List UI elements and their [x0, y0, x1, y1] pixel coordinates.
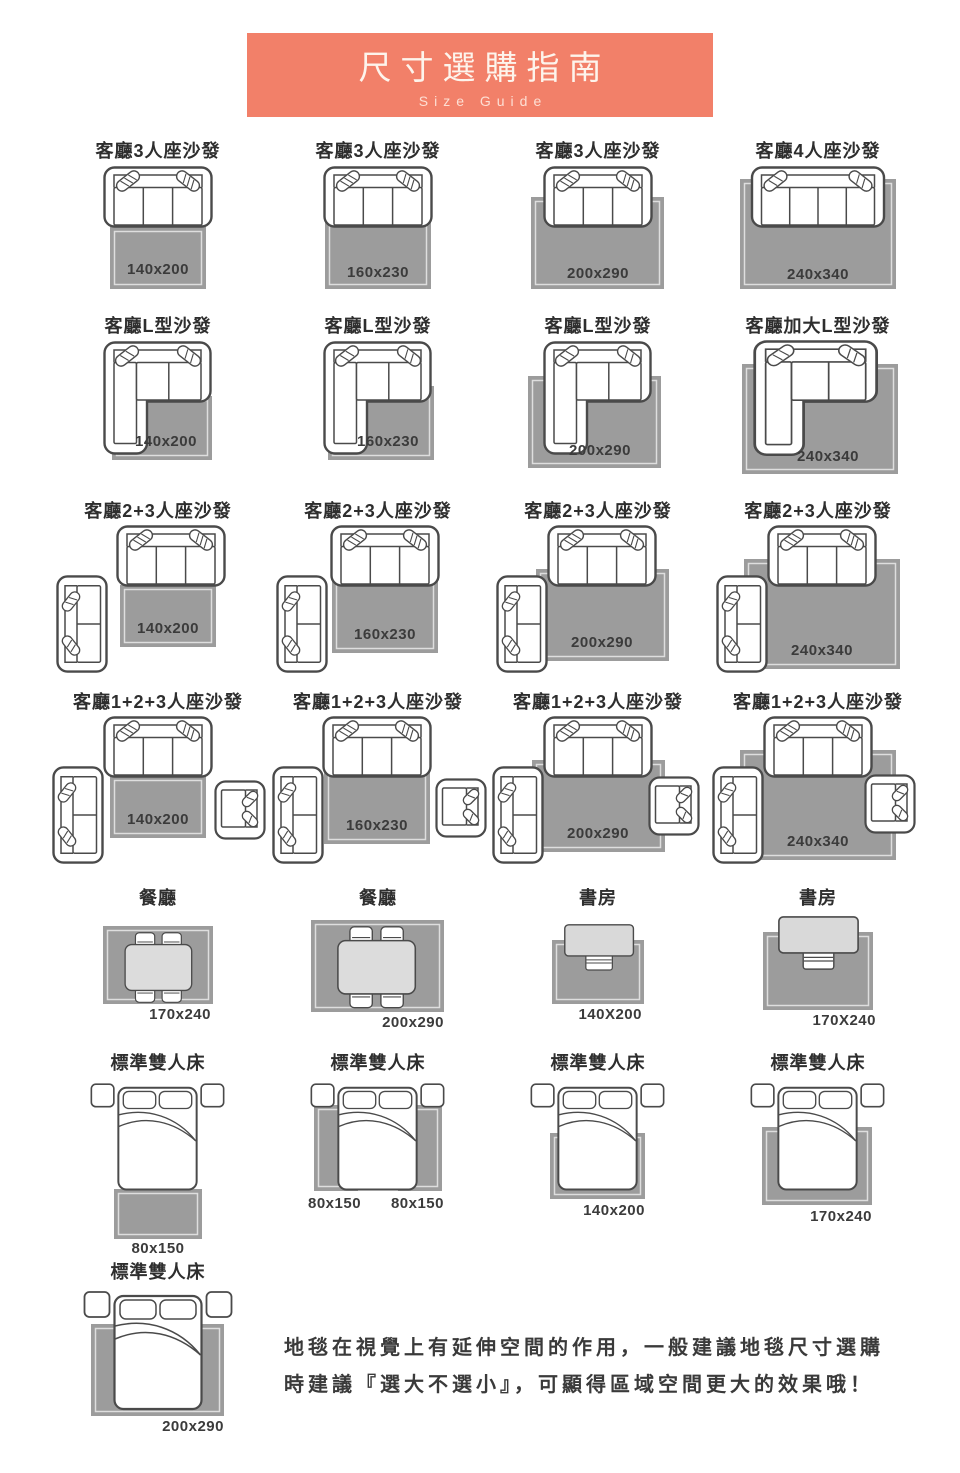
cell-title: 書房: [579, 884, 617, 910]
sofa-3seat-top-view-icon: [118, 527, 225, 586]
cell-figure: 160x230: [268, 714, 488, 874]
rug-size-label: 200x290: [162, 1418, 224, 1435]
sofa-3seat-top-view-icon: [549, 527, 656, 586]
sofa-1plus2plus3-diagram: [708, 714, 928, 874]
cell-sofa123-140x200: 客廳1+2+3人座沙發 140x200: [48, 688, 268, 874]
header-banner: 尺寸選購指南 Size Guide: [247, 33, 713, 117]
cell-title: 客廳1+2+3人座沙發: [73, 688, 243, 714]
rug-size-label: 240x340: [791, 642, 853, 659]
rug-size-label: 80x150: [308, 1195, 361, 1212]
cell-figure: 170x240: [708, 1075, 928, 1250]
sofa-3seat-top-view-icon: [765, 718, 872, 777]
sofa-3seat-top-view-icon: [105, 718, 212, 777]
sofa-3seat-top-view-icon: [545, 718, 652, 777]
cell-title: 餐廳: [139, 884, 177, 910]
cell-title: 客廳加大L型沙發: [746, 312, 891, 338]
loveseat-2seat-top-view-icon: [718, 576, 767, 671]
cell-bed-side-runners-80x150: 標準雙人床 80x150 80x150: [268, 1049, 488, 1250]
row-dining-study: 餐廳 170x240 餐廳 200x290 書房 140X200: [0, 884, 960, 1035]
rug-size-label: 200x290: [569, 442, 631, 459]
cell-title: 客廳3人座沙發: [535, 137, 660, 163]
cell-figure: 160x230: [268, 163, 488, 298]
sofa-2plus3-diagram: [268, 523, 488, 678]
gray-rug: [110, 776, 206, 838]
cell-title: 客廳1+2+3人座沙發: [733, 688, 903, 714]
cell-title: 標準雙人床: [111, 1049, 206, 1075]
bed-runners-diagram: [268, 1075, 488, 1250]
cell-study-170x240: 書房 170X240: [708, 884, 928, 1035]
cell-lsofa-200x290: 客廳L型沙發 200x290: [488, 312, 708, 483]
sofa-3seat-top-view-icon: [105, 168, 212, 227]
cell-figure: 200x290: [488, 338, 708, 483]
l-sofa-diagram: [48, 338, 268, 483]
row-sofa-1plus2plus3: 客廳1+2+3人座沙發 140x200 客廳1+2+3人座沙發 160x230 …: [0, 688, 960, 874]
cell-lsofa-140x200: 客廳L型沙發 140x200: [48, 312, 268, 483]
cell-figure: 160x230: [268, 338, 488, 483]
cell-figure: 140x200: [48, 163, 268, 298]
cell-title: 書房: [799, 884, 837, 910]
cell-title: 標準雙人床: [551, 1049, 646, 1075]
sofa-1plus2plus3-diagram: [48, 714, 268, 874]
rug-size-label: 200x290: [567, 825, 629, 842]
sofa-1plus2plus3-diagram: [488, 714, 708, 874]
cell-figure: 80x150 80x150: [268, 1075, 488, 1250]
rug-size-label: 80x150: [131, 1240, 184, 1257]
l-sofa-diagram: [488, 338, 708, 483]
cell-dining-170x240: 餐廳 170x240: [48, 884, 268, 1035]
rug-size-label: 200x290: [382, 1014, 444, 1031]
cell-figure: 170X240: [708, 910, 928, 1035]
cell-figure: 140X200: [488, 910, 708, 1035]
loveseat-2seat-top-view-icon: [274, 767, 323, 862]
cell-figure: 200x290: [488, 163, 708, 298]
cell-bed-foot-rug-80x150: 標準雙人床 80x150: [48, 1049, 268, 1250]
rug-size-label: 170x240: [149, 1006, 211, 1023]
cell-title: 標準雙人床: [111, 1258, 206, 1284]
gray-rug: [110, 227, 206, 289]
cell-figure: 240x340: [708, 523, 928, 678]
cell-figure: 160x230: [268, 523, 488, 678]
cell-figure: 140x200: [48, 523, 268, 678]
rug-size-label: 240x340: [797, 448, 859, 465]
rug-size-label: 140x200: [137, 620, 199, 637]
cell-sofa3-140x200: 客廳3人座沙發 140x200: [48, 137, 268, 298]
cell-figure: 240x340: [708, 338, 928, 483]
cell-bed-140x200: 標準雙人床 140x200: [488, 1049, 708, 1250]
rug-size-label: 140X200: [578, 1006, 642, 1023]
loveseat-2seat-top-view-icon: [494, 767, 543, 862]
cell-lsofa-xl-240x340: 客廳加大L型沙發 240x340: [708, 312, 928, 483]
cell-title: 客廳3人座沙發: [95, 137, 220, 163]
rug-size-label: 80x150: [391, 1195, 444, 1212]
l-sofa-diagram: [268, 338, 488, 483]
cell-title: 客廳L型沙發: [325, 312, 432, 338]
sofa-3seat-top-view-icon: [325, 168, 432, 227]
cell-figure: 200x290: [48, 1284, 268, 1434]
cell-figure: 140x200: [48, 338, 268, 483]
sofa-3seat-top-view-icon: [324, 718, 431, 777]
armchair-top-view-icon: [216, 782, 265, 839]
cell-figure: 200x290: [488, 714, 708, 874]
rug-size-label: 140x200: [583, 1202, 645, 1219]
cell-title: 標準雙人床: [771, 1049, 866, 1075]
rug-size-label: 170x240: [810, 1208, 872, 1225]
sofa-3seat-top-view-icon: [545, 168, 652, 227]
cell-title: 客廳2+3人座沙發: [524, 497, 672, 523]
row-sofa-straight: 客廳3人座沙發 140x200 客廳3人座沙發 160x230 客廳3人座沙發 …: [0, 137, 960, 298]
rug-size-label: 160x230: [346, 817, 408, 834]
cell-title: 客廳4人座沙發: [755, 137, 880, 163]
cell-title: 客廳2+3人座沙發: [84, 497, 232, 523]
rug-size-label: 170X240: [812, 1012, 876, 1029]
cell-title: 客廳3人座沙發: [315, 137, 440, 163]
sofa-3seat-top-view-icon: [769, 527, 876, 586]
loveseat-2seat-top-view-icon: [714, 767, 763, 862]
cell-dining-200x290: 餐廳 200x290: [268, 884, 488, 1035]
rug-size-label: 240x340: [787, 833, 849, 850]
sofa-3seat-top-view-icon: [332, 527, 439, 586]
cell-sofa3-200x290: 客廳3人座沙發 200x290: [488, 137, 708, 298]
sofa-4seat-top-view-icon: [752, 168, 884, 227]
cell-sofa23-160x230: 客廳2+3人座沙發 160x230: [268, 497, 488, 678]
cell-study-140x200: 書房 140X200: [488, 884, 708, 1035]
gray-rug: [120, 585, 216, 647]
sofa-2plus3-diagram: [488, 523, 708, 678]
bed-diagram: [48, 1284, 268, 1434]
page-subtitle: Size Guide: [413, 93, 547, 109]
sofa-1plus2plus3-diagram: [268, 714, 488, 874]
advice-note: 地毯在視覺上有延伸空間的作用，一般建議地毯尺寸選購時建議『選大不選小』，可顯得區…: [284, 1330, 896, 1434]
cell-title: 標準雙人床: [331, 1049, 426, 1075]
cell-title: 客廳2+3人座沙發: [304, 497, 452, 523]
loveseat-2seat-top-view-icon: [58, 576, 107, 671]
rug-size-label: 200x290: [571, 634, 633, 651]
cell-figure: 140x200: [48, 714, 268, 874]
cell-figure: 170x240: [48, 910, 268, 1035]
cell-figure: 200x290: [268, 910, 488, 1035]
rug-size-label: 160x230: [354, 626, 416, 643]
rug-size-label: 200x290: [567, 265, 629, 282]
armchair-top-view-icon: [866, 776, 915, 833]
cell-sofa123-200x290: 客廳1+2+3人座沙發 200x290: [488, 688, 708, 874]
cell-figure: 240x340: [708, 163, 928, 298]
page-title: 尺寸選購指南: [350, 41, 611, 89]
cell-sofa3-160x230: 客廳3人座沙發 160x230: [268, 137, 488, 298]
rug-size-label: 140x200: [127, 811, 189, 828]
cell-title: 客廳L型沙發: [105, 312, 212, 338]
double-bed-top-view-icon: [91, 1084, 223, 1189]
bed-diagram: [488, 1075, 708, 1250]
cell-sofa23-240x340: 客廳2+3人座沙發 240x340: [708, 497, 928, 678]
cell-bed-200x290: 標準雙人床 200x290: [48, 1258, 268, 1434]
cell-title: 客廳1+2+3人座沙發: [293, 688, 463, 714]
cell-sofa23-140x200: 客廳2+3人座沙發 140x200: [48, 497, 268, 678]
cell-lsofa-160x230: 客廳L型沙發 160x230: [268, 312, 488, 483]
row-beds: 標準雙人床 80x150 標準雙人床 80x150 80x150 標準雙人床: [0, 1049, 960, 1250]
row-sofa-2plus3: 客廳2+3人座沙發 140x200 客廳2+3人座沙發 160x230 客廳2+…: [0, 497, 960, 678]
armchair-top-view-icon: [437, 780, 486, 837]
cell-sofa123-240x340: 客廳1+2+3人座沙發 240x340: [708, 688, 928, 874]
cell-sofa123-160x230: 客廳1+2+3人座沙發 160x230: [268, 688, 488, 874]
row-bed-note: 標準雙人床 200x290 地毯在視覺上有延伸空間的作用，一般建議地毯尺寸選購時…: [0, 1258, 960, 1434]
cell-title: 客廳L型沙發: [545, 312, 652, 338]
rug-size-label: 140x200: [135, 433, 197, 450]
loveseat-2seat-top-view-icon: [278, 576, 327, 671]
cell-figure: 140x200: [488, 1075, 708, 1250]
loveseat-2seat-top-view-icon: [498, 576, 547, 671]
rug-size-label: 160x230: [357, 433, 419, 450]
cell-sofa4-240x340: 客廳4人座沙發 240x340: [708, 137, 928, 298]
cell-figure: 240x340: [708, 714, 928, 874]
cell-title: 客廳1+2+3人座沙發: [513, 688, 683, 714]
armchair-top-view-icon: [650, 778, 699, 835]
cell-title: 餐廳: [359, 884, 397, 910]
rug-size-label: 240x340: [787, 266, 849, 283]
cell-bed-170x240: 標準雙人床 170x240: [708, 1049, 928, 1250]
gray-rug: [114, 1189, 202, 1239]
dining-diagram: [268, 910, 488, 1035]
cell-figure: 200x290: [488, 523, 708, 678]
sofa-2plus3-diagram: [48, 523, 268, 678]
bed-diagram: [48, 1075, 268, 1250]
rug-size-label: 160x230: [347, 264, 409, 281]
rug-size-label: 140x200: [127, 261, 189, 278]
row-sofa-lshape: 客廳L型沙發 140x200 客廳L型沙發 160x230 客廳L型沙發 200…: [0, 312, 960, 483]
loveseat-2seat-top-view-icon: [54, 767, 103, 862]
cell-figure: 80x150: [48, 1075, 268, 1250]
cell-sofa23-200x290: 客廳2+3人座沙發 200x290: [488, 497, 708, 678]
cell-title: 客廳2+3人座沙發: [744, 497, 892, 523]
